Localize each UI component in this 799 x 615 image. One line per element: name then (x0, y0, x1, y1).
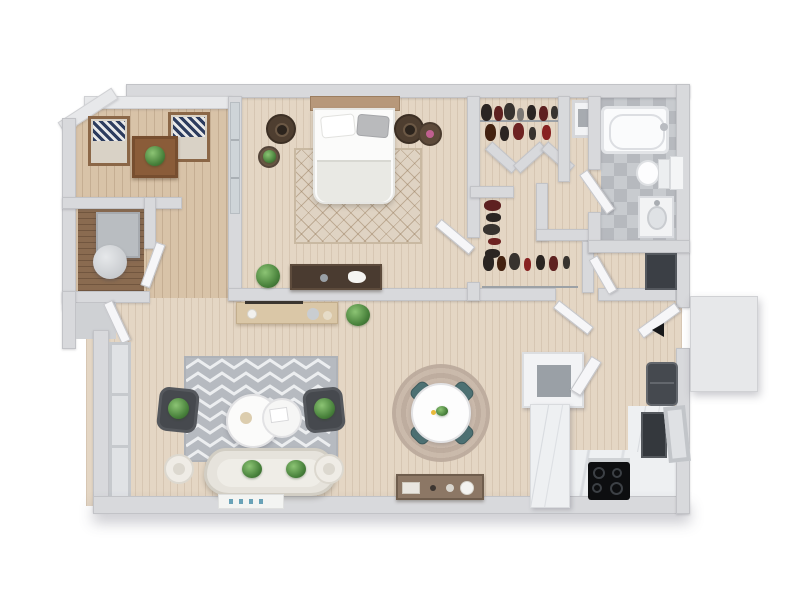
clothes-rack-side (484, 200, 501, 211)
toilet-bowl (636, 160, 660, 186)
sink-basin (647, 206, 667, 230)
console-decor-vase (307, 308, 319, 320)
console-decor-bar (245, 301, 303, 304)
fridge-divider (650, 382, 674, 384)
room-laundry (588, 253, 690, 301)
bedroom-dresser (290, 264, 382, 290)
bathtub-basin (609, 114, 665, 150)
bed-mattress (313, 108, 395, 204)
closet-wall-b (558, 96, 570, 182)
kitchen-sink-cabinet (522, 352, 584, 408)
clothes-rack-bottom (483, 254, 494, 271)
living-window-band (109, 342, 131, 500)
entry-landing (690, 296, 758, 392)
sink-faucet (654, 200, 660, 206)
glass-frame-line (231, 139, 239, 141)
room-bathroom (588, 96, 690, 253)
dresser-plant (256, 264, 280, 288)
laundry-door (589, 255, 618, 295)
patio-table-plant (145, 146, 165, 166)
table-lamp (277, 125, 287, 135)
armchair-left-plant (168, 398, 189, 419)
sliding-glass-door (230, 102, 240, 214)
cabinet-opening (537, 365, 571, 397)
sofa-plant-right (286, 460, 306, 478)
wall-art (218, 494, 284, 509)
closet-hwall-1 (470, 186, 514, 198)
room-closet (467, 96, 597, 301)
console-decor-ball (323, 311, 332, 320)
room-bedroom (242, 96, 467, 288)
pillow-gray (356, 114, 390, 139)
dresser-knob (320, 274, 328, 282)
counter-window (663, 405, 691, 463)
nook-wall-top (62, 197, 182, 209)
sideboard-tray (402, 482, 420, 494)
side-table-left (164, 454, 194, 484)
bathtub (601, 106, 669, 154)
clothes-rack-top-row2 (485, 124, 496, 141)
coffee-book (269, 407, 289, 423)
window-mullion (112, 393, 128, 396)
burner (612, 468, 622, 478)
glass-frame-line (231, 177, 239, 179)
closet-zigzag-wall (485, 141, 519, 173)
sideboard-decor (460, 481, 474, 495)
bath-cabinet (670, 156, 684, 190)
nightstand-left (266, 114, 296, 144)
nook-wall-right (144, 197, 156, 249)
nightstand-right-small (418, 122, 442, 146)
closet-rail-top (480, 120, 558, 122)
sideboard-knob (430, 485, 436, 491)
bath-wall-bottom (588, 240, 690, 253)
vanity-sink (638, 196, 674, 238)
bath-wall-left-top (588, 96, 601, 170)
wall-alcove-left (62, 291, 76, 349)
bathtub-faucet (660, 123, 668, 131)
lounge-cushion-pattern (173, 117, 205, 137)
window-mullion (112, 445, 128, 448)
sideboard (396, 474, 484, 500)
peninsula-counter (530, 404, 570, 508)
toilet-tank (658, 159, 670, 189)
table-centerpiece (436, 406, 448, 416)
coffee-decor (240, 412, 252, 424)
lounge-chair-left (88, 116, 130, 166)
room-kitchen (520, 350, 690, 500)
room-dining (390, 360, 500, 500)
lounge-cushion-pattern (93, 121, 125, 141)
table-lamp (405, 125, 415, 135)
living-plant (346, 304, 370, 326)
closet-zigzag-wall (513, 141, 547, 173)
utility-dark-cabinet (645, 253, 677, 290)
side-table-decor (323, 463, 335, 475)
burner (593, 467, 605, 479)
console-decor-dish (247, 309, 257, 319)
front-door-handle (652, 323, 664, 337)
burner (610, 482, 623, 495)
clothes-rack-top (481, 104, 492, 121)
pillow-white (320, 113, 356, 138)
flower-vase (426, 130, 434, 138)
nook-stool (93, 245, 127, 279)
side-table-decor (173, 463, 185, 475)
sofa-plant-left (242, 460, 262, 478)
room-living (130, 296, 390, 512)
nightstand-plant (263, 150, 276, 163)
floor-plan (0, 0, 799, 615)
console-table (236, 302, 338, 324)
bed-blanket (317, 160, 391, 202)
dresser-decor-white (348, 271, 366, 283)
cooktop (588, 462, 630, 500)
side-table-right (314, 454, 344, 484)
closet-hwall-2 (536, 229, 594, 241)
oven (641, 412, 667, 458)
sofa-seat (217, 459, 323, 487)
sideboard-decor-small (446, 484, 454, 492)
armchair-right-plant (314, 398, 335, 419)
refrigerator (646, 362, 678, 406)
closet-rail-bottom (482, 286, 578, 288)
wall-left-living (93, 330, 109, 512)
burner (592, 483, 602, 493)
centerpiece-flower (431, 410, 436, 415)
